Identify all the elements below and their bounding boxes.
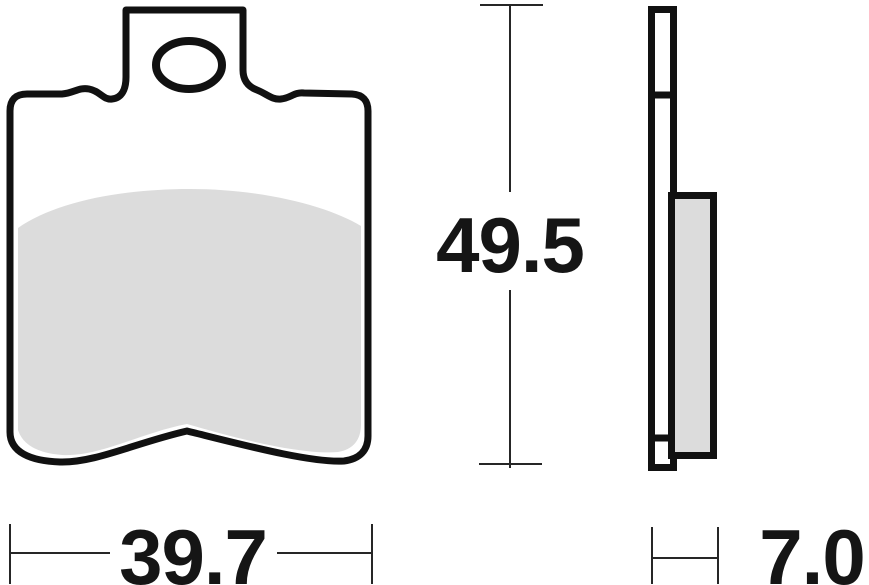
height-dim-label: 49.5 (436, 201, 584, 289)
width-dimension: 39.7 (10, 513, 372, 585)
technical-drawing-canvas: 49.5 39.7 7.0 (0, 0, 869, 585)
side-view-friction-material (672, 196, 714, 456)
brake-pad-drawing: 49.5 39.7 7.0 (0, 0, 869, 585)
height-dimension: 49.5 (436, 5, 584, 468)
mounting-hole-icon (156, 41, 222, 89)
width-dim-label: 39.7 (119, 513, 267, 585)
friction-material-front (18, 189, 361, 455)
thickness-dimension: 7.0 (652, 513, 865, 585)
side-view (648, 10, 714, 468)
front-view (10, 10, 368, 462)
thickness-dim-label: 7.0 (759, 513, 864, 585)
